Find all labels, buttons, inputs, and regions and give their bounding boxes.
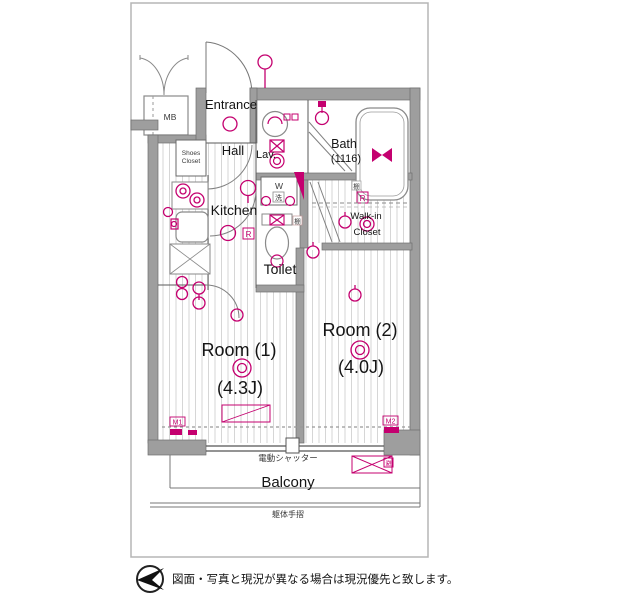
lav-label: Lav. (256, 149, 276, 161)
svg-text:避: 避 (385, 460, 391, 468)
toilet-bowl-icon (266, 227, 289, 259)
kitchen-fixtures (170, 182, 210, 274)
washer-label: W (275, 181, 283, 191)
wic-label-2: Closet (354, 227, 381, 238)
bathtub-icon (356, 108, 408, 200)
shutter-label: 電動シャッター (258, 453, 318, 463)
handrail-label: 躯体手摺 (272, 509, 304, 519)
svg-text:M1: M1 (173, 420, 183, 427)
window-mullion (286, 438, 299, 453)
disclaimer-text: 図面・写真と現況が異なる場合は現況優先と致します。 (172, 572, 458, 586)
wic-label-1: Walk-in (350, 211, 381, 222)
toilet-label: Toilet (264, 261, 297, 277)
shoes-closet: Shoes Closet (176, 140, 206, 176)
room2-name-label: Room (2) (322, 320, 397, 340)
svg-text:棚: 棚 (353, 182, 360, 191)
balcony-label: Balcony (261, 474, 315, 491)
mb-label: MB (164, 112, 177, 122)
kitchen-sink (176, 212, 208, 242)
svg-text:R: R (360, 194, 366, 203)
room1-size-label: (4.3J) (217, 378, 263, 398)
floor-plan-page: MB Shoes Clo (0, 0, 622, 600)
svg-text:R: R (246, 230, 252, 239)
floor-plan-drawing: MB Shoes Clo (0, 0, 622, 600)
washer-kanji-label: 洗 (275, 193, 282, 202)
svg-text:M2: M2 (386, 419, 396, 426)
entrance-label: Entrance (205, 97, 257, 112)
room2-size-label: (4.0J) (338, 357, 384, 377)
shoes-closet-label-1: Shoes (182, 150, 201, 157)
hall-label: Hall (222, 143, 245, 158)
bath-label-2: (1116) (331, 153, 361, 165)
svg-text:棚: 棚 (294, 217, 301, 226)
footer: 図面・写真と現況が異なる場合は現況優先と致します。 (137, 566, 458, 592)
shoes-closet-label-2: Closet (182, 158, 201, 165)
bath-label-1: Bath (331, 137, 357, 151)
kitchen-label: Kitchen (211, 202, 258, 218)
room1-name-label: Room (1) (201, 340, 276, 360)
shelf-toilet: 棚 (293, 216, 302, 226)
shelf-wic: 棚 (352, 181, 361, 191)
compass-arrow-icon (137, 566, 164, 592)
